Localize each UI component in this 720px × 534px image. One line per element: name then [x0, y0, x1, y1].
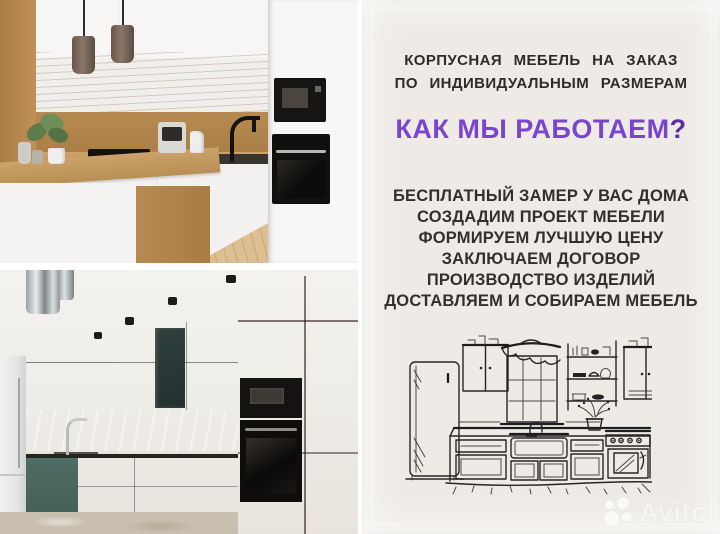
microwave [240, 378, 302, 418]
vase [18, 142, 31, 164]
fridge-seam [0, 474, 26, 476]
plant-pot [48, 148, 65, 164]
chrome-pendant-small [58, 270, 74, 300]
microwave-button [315, 86, 321, 92]
fridge-handle [18, 378, 20, 468]
oven-handle [245, 428, 297, 431]
faucet-chrome [66, 418, 87, 455]
step-6: ДОСТАВЛЯЕМ И СОБИРАЕМ МЕБЕЛЬ [362, 292, 720, 311]
step-1: БЕСПЛАТНЫЙ ЗАМЕР У ВАС ДОМА [362, 187, 720, 206]
ceiling-spotlight [226, 275, 236, 283]
heading-line-1: КОРПУСНАЯ МЕБЕЛЬ НА ЗАКАЗ [362, 52, 720, 69]
coffee-machine [158, 122, 186, 153]
peninsula-front-white [0, 183, 148, 263]
oven [240, 420, 302, 502]
avito-watermark: Avito [604, 497, 708, 528]
avito-circle-large [604, 511, 619, 526]
avito-watermark-text: Avito [639, 497, 708, 528]
oven-glass [277, 160, 325, 198]
pendant-lamp [72, 36, 95, 74]
coffee-machine-face [162, 127, 182, 141]
ad-image: КОРПУСНАЯ МЕБЕЛЬ НА ЗАКАЗ ПО ИНДИВИДУАЛЬ… [0, 0, 720, 534]
oven-glass [246, 438, 296, 494]
ceiling-spotlight [168, 297, 177, 305]
step-4: ЗАКЛЮЧАЕМ ДОГОВОР [362, 250, 720, 269]
subheading-text: КАК МЫ РАБОТАЕМ [395, 114, 669, 144]
microwave-screen [250, 388, 284, 404]
avito-circle-small [605, 500, 614, 509]
oven [272, 134, 330, 204]
info-panel: КОРПУСНАЯ МЕБЕЛЬ НА ЗАКАЗ ПО ИНДИВИДУАЛЬ… [362, 0, 720, 534]
oven-handle [276, 150, 326, 153]
chrome-pendant [26, 270, 60, 314]
pendant-lamp [111, 25, 134, 63]
kettle [190, 131, 204, 153]
microwave-screen [282, 88, 308, 108]
pendant-cord [83, 0, 85, 38]
kitchen-sketch [390, 332, 652, 496]
microwave [274, 78, 326, 122]
kitchen-photo-top [0, 0, 358, 263]
step-3: ФОРМИРУЕМ ЛУЧШУЮ ЦЕНУ [362, 229, 720, 248]
vase [32, 150, 43, 164]
glass-display-cabinet [155, 328, 185, 408]
avito-logo-icon [604, 497, 635, 528]
marble-backsplash [26, 410, 238, 454]
subheading-question-mark: ? [670, 114, 687, 144]
upper-teal-left [26, 318, 116, 412]
kitchen-photo-bottom [0, 270, 358, 534]
fridge [0, 356, 26, 534]
avito-circle-small2 [622, 512, 632, 522]
floor-marble [0, 512, 238, 534]
faucet-spout [252, 118, 256, 132]
avito-circle-medium [617, 497, 629, 509]
pendant-cord [122, 0, 124, 27]
appliance-column [268, 0, 358, 263]
subheading: КАК МЫ РАБОТАЕМ? [362, 114, 720, 145]
step-2: СОЗДАДИМ ПРОЕКТ МЕБЕЛИ [362, 208, 720, 227]
step-5: ПРОИЗВОДСТВО ИЗДЕЛИЙ [362, 271, 720, 290]
peninsula-front-wood [136, 186, 210, 263]
heading-line-2: ПО ИНДИВИДУАЛЬНЫМ РАЗМЕРАМ [362, 75, 720, 92]
